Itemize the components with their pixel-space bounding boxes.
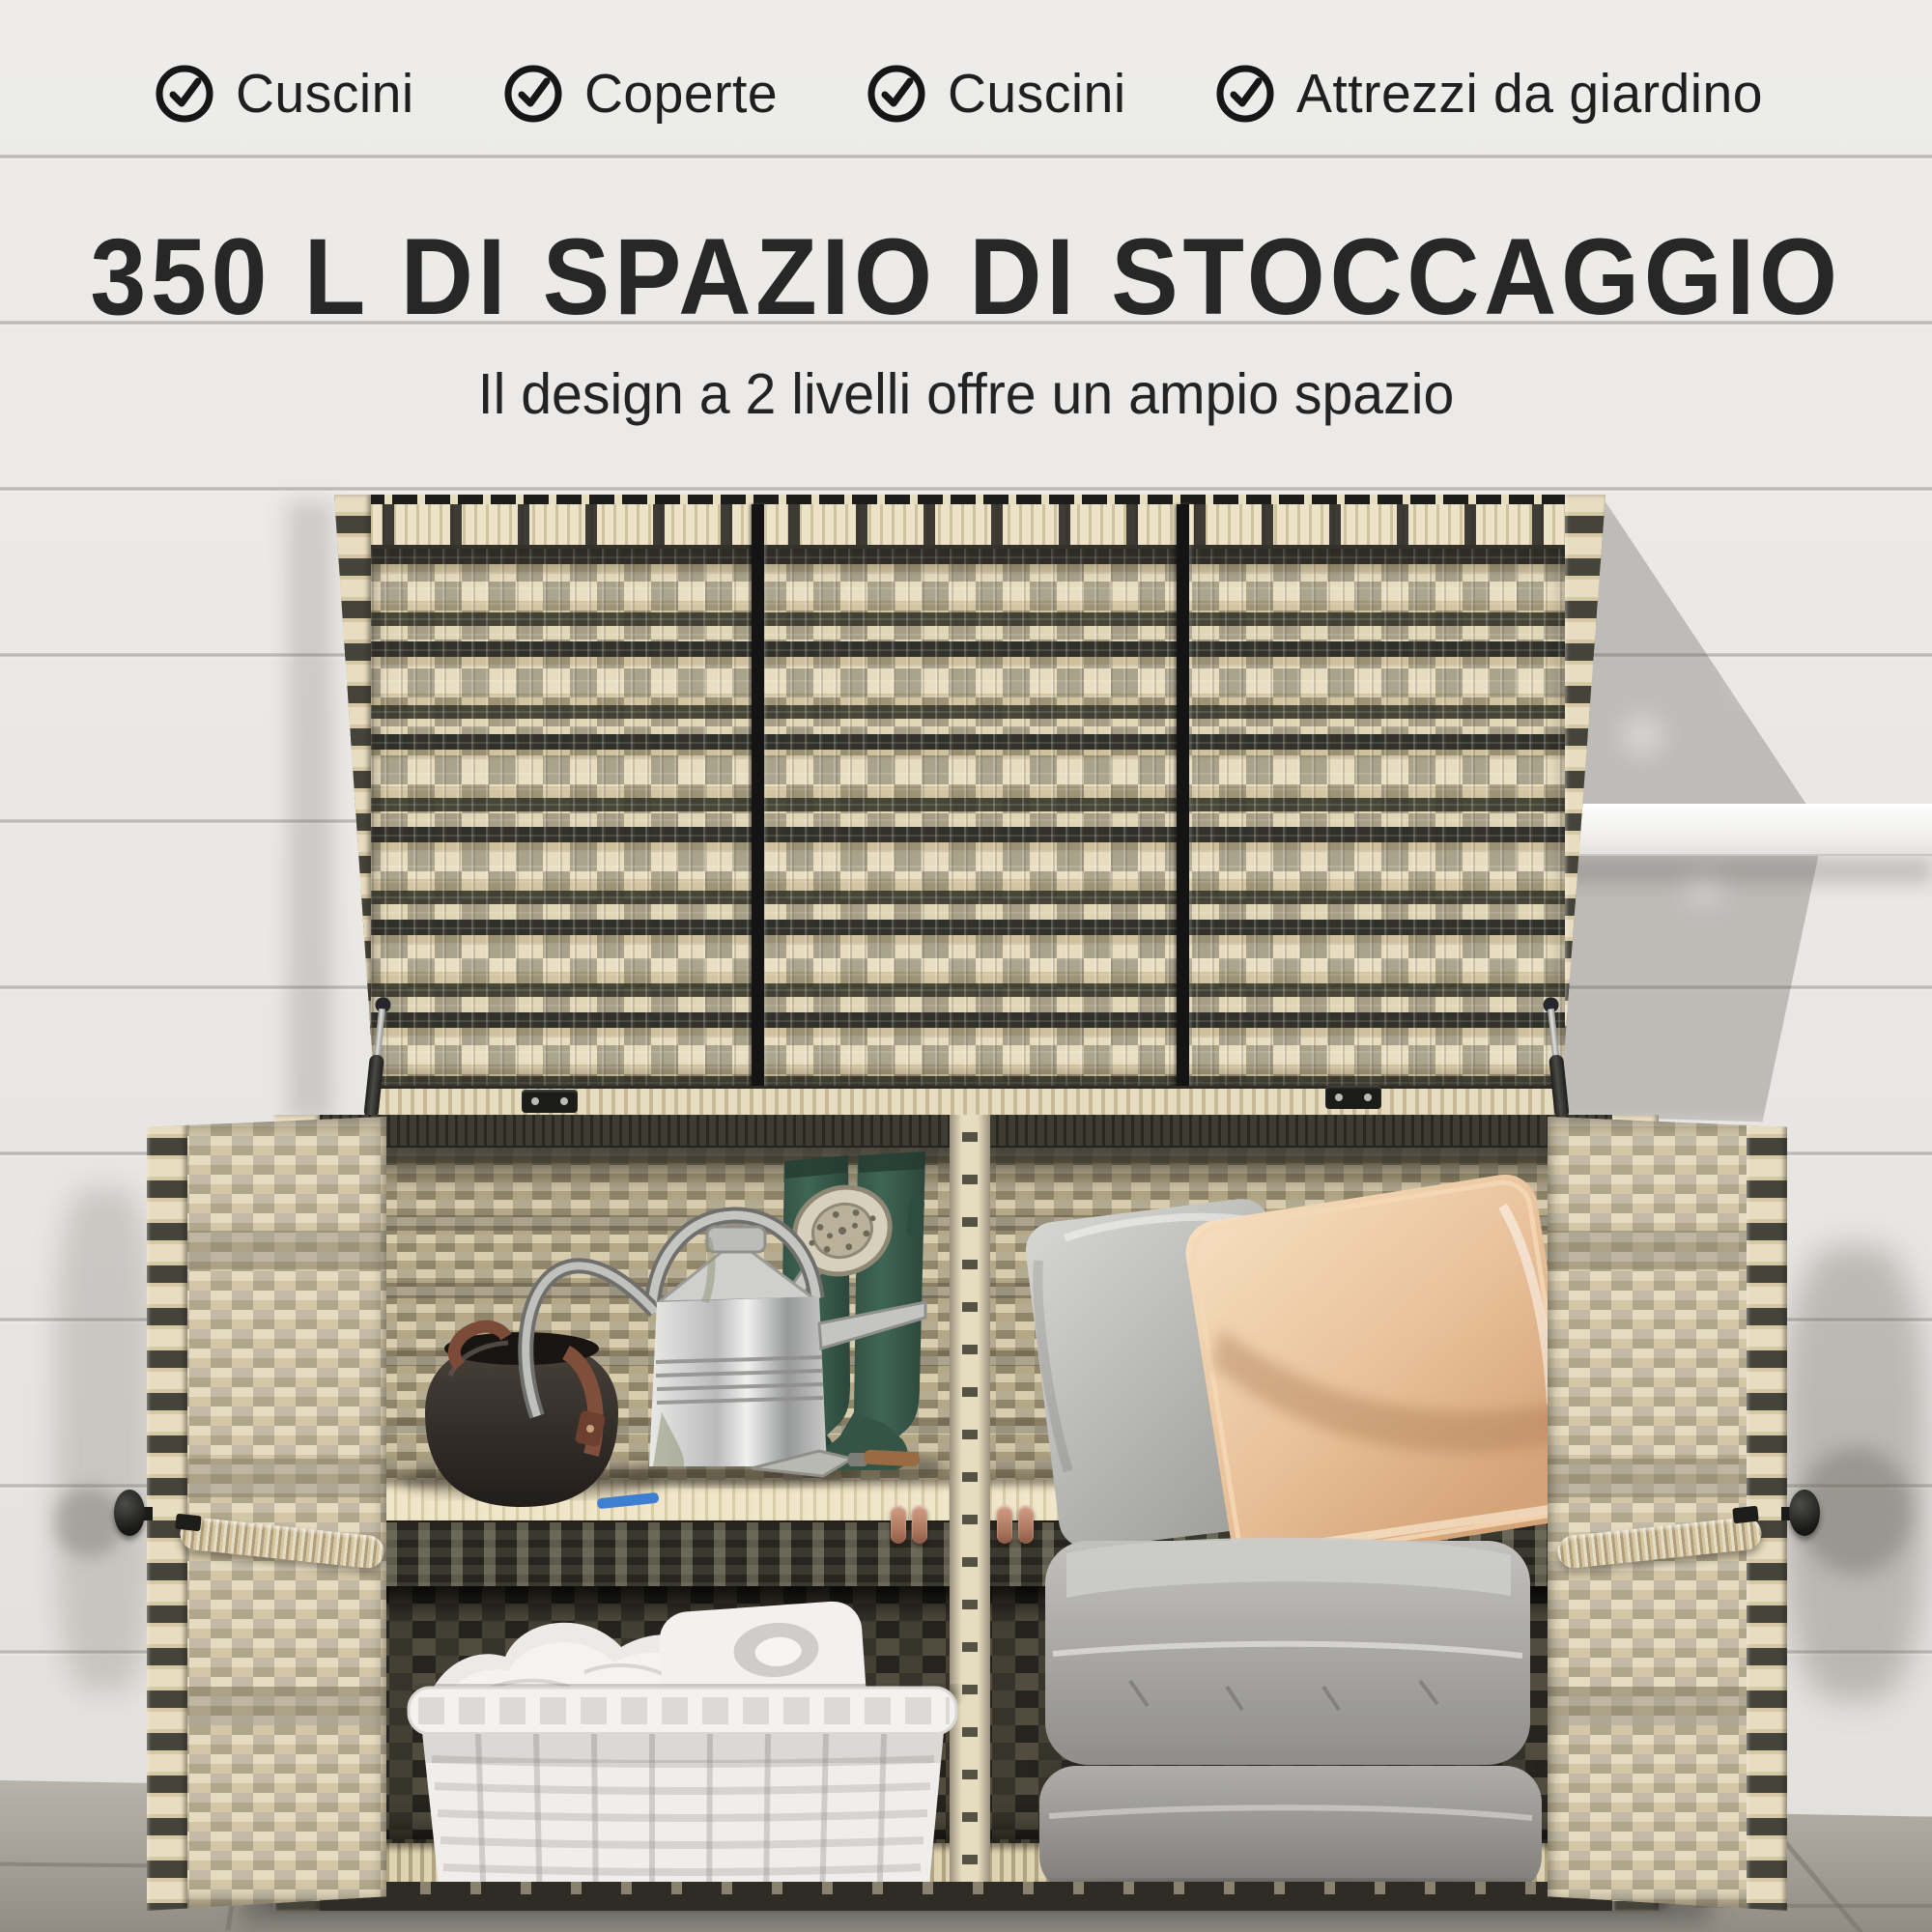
strut-rod	[374, 1009, 385, 1059]
lid-shadow	[288, 502, 332, 1121]
left-door	[147, 1117, 386, 1911]
window-ledge	[1542, 804, 1932, 856]
feature-label: Attrezzi da giardino	[1296, 62, 1763, 126]
knob-shadow	[54, 1488, 124, 1557]
storage-box-lid	[327, 495, 1609, 1119]
shelf-strap-handle	[997, 1505, 1012, 1544]
feature-badge: Attrezzi da giardino	[1215, 62, 1777, 126]
right-door	[1548, 1117, 1787, 1911]
handle-bracket	[175, 1514, 202, 1532]
lid-left-edge	[327, 495, 371, 1119]
feature-badge: Coperte	[503, 62, 783, 126]
hinge-plate	[1325, 1086, 1381, 1109]
lid-top-strand-band	[327, 504, 1609, 549]
feature-label: Cuscini	[236, 62, 414, 126]
check-circle-icon	[1215, 64, 1275, 124]
hinge-plate	[522, 1090, 578, 1113]
door-shadow	[56, 1188, 153, 1690]
lid-divider-bar	[1177, 504, 1189, 1119]
subheadline: Il design a 2 livelli offre un ampio spa…	[29, 361, 1903, 427]
feature-label: Cuscini	[948, 62, 1126, 126]
shelf-strap-handle	[1018, 1505, 1034, 1544]
lid-divider-bar	[752, 504, 764, 1119]
seat-cushion-stack	[1032, 1538, 1549, 1906]
feature-badge: Cuscini	[155, 62, 419, 126]
basket-blankets-group	[391, 1579, 971, 1913]
feature-label: Coperte	[584, 62, 778, 126]
box-bottom-rail	[320, 1882, 1612, 1911]
ledge-shadow	[1542, 858, 1932, 883]
check-circle-icon	[503, 64, 563, 124]
lid-weave-field	[369, 549, 1567, 1086]
door-knob	[114, 1490, 145, 1536]
check-circle-icon	[867, 64, 926, 124]
shelf-strap-handle	[912, 1505, 927, 1544]
shelf-strap-handle	[891, 1505, 906, 1544]
feature-badge: Cuscini	[867, 62, 1131, 126]
handle-bracket	[1732, 1506, 1759, 1524]
headline: 350 L DI SPAZIO DI STOCCAGGIO	[68, 220, 1864, 334]
lid-bottom-strand-band	[327, 1086, 1609, 1119]
strut-rod	[1548, 1009, 1559, 1059]
door-knob	[1789, 1490, 1820, 1536]
peach-pillow	[1181, 1170, 1589, 1573]
feature-badges-row: Cuscini Coperte Cuscini Attrezzi da giar…	[0, 62, 1932, 126]
tile-seam	[1776, 1832, 1873, 1932]
blue-hand-tool	[597, 1492, 660, 1510]
lid-top-frame	[327, 495, 1609, 504]
check-circle-icon	[155, 64, 214, 124]
wall-groove	[0, 487, 1932, 493]
wicker-basket	[409, 1686, 956, 1911]
product-infographic: Cuscini Coperte Cuscini Attrezzi da giar…	[0, 0, 1932, 1932]
wall-groove	[0, 155, 1932, 160]
